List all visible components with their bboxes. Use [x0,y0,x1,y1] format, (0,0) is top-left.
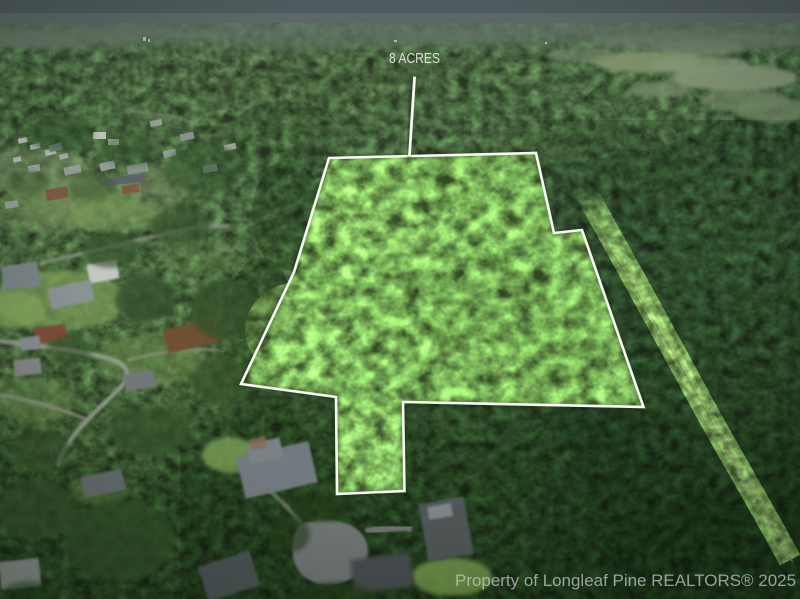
svg-text:Property of Longleaf Pine REAL: Property of Longleaf Pine REALTORS® 2025 [455,571,796,590]
